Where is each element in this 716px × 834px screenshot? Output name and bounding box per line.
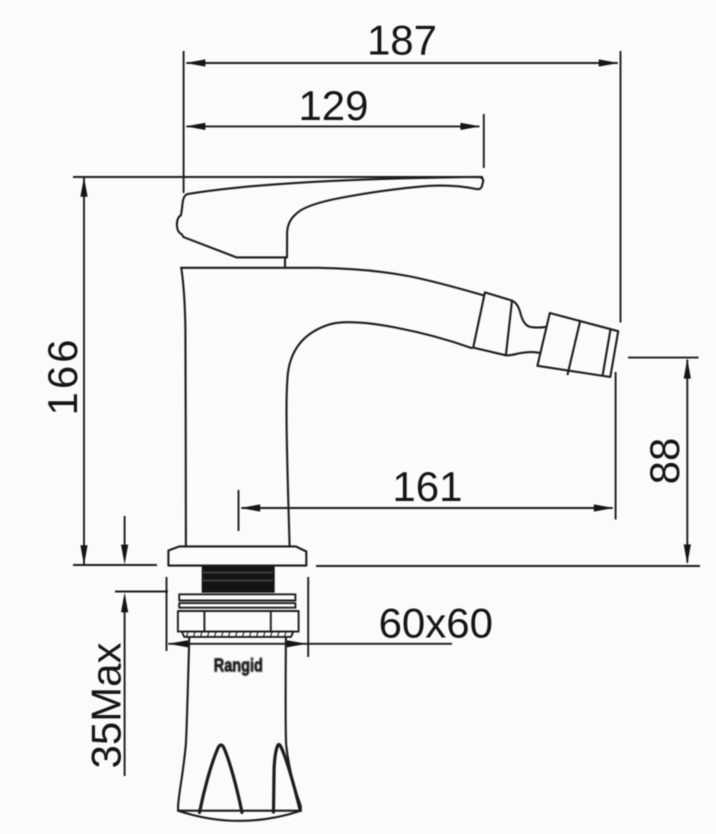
svg-text:88: 88 [641, 438, 688, 485]
svg-text:166: 166 [39, 336, 86, 415]
svg-text:60x60: 60x60 [379, 600, 493, 647]
svg-text:Rangid: Rangid [214, 655, 263, 676]
svg-text:35Max: 35Max [82, 642, 129, 768]
svg-text:187: 187 [367, 17, 437, 64]
svg-text:129: 129 [298, 82, 368, 129]
svg-text:161: 161 [392, 463, 462, 510]
